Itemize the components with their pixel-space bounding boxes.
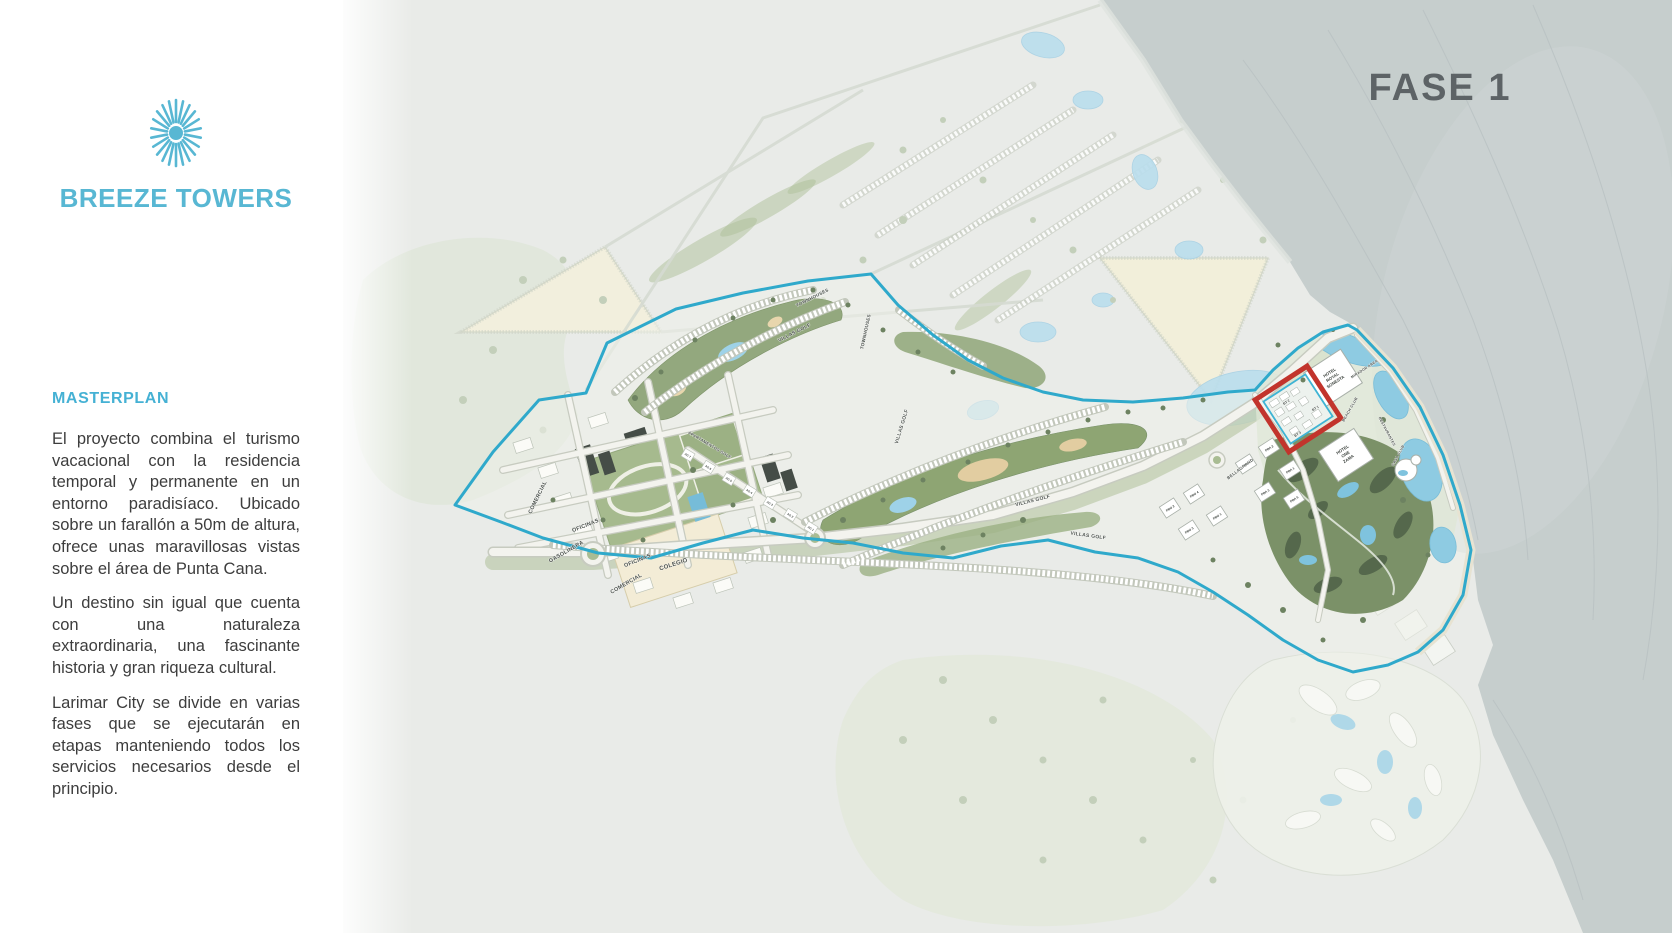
brand-logo: BREEZE TOWERS [52,96,300,214]
masterplan-map: BT 2 BT 1 BT 3 FASE 1 COMERCIAL OFICINAS… [343,0,1672,933]
masterplan-paragraph-3: Larimar City se divide en varias fases q… [52,693,300,801]
shell-logo-icon [148,96,204,168]
brand-name: BREEZE TOWERS [52,183,300,214]
masterplan-svg: BT 2 BT 1 BT 3 FASE 1 COMERCIAL OFICINAS… [343,0,1672,933]
masterplan-heading: MASTERPLAN [52,390,300,408]
page: BREEZE TOWERS MASTERPLAN El proyecto com… [0,0,1672,933]
left-edge-fade [343,0,413,933]
phase-label: FASE 1 [1369,67,1512,109]
masterplan-paragraph-1: El proyecto combina el turismo vacaciona… [52,429,300,580]
sidebar: BREEZE TOWERS MASTERPLAN El proyecto com… [0,0,343,933]
masterplan-paragraph-2: Un destino sin igual que cuenta con una … [52,593,300,679]
